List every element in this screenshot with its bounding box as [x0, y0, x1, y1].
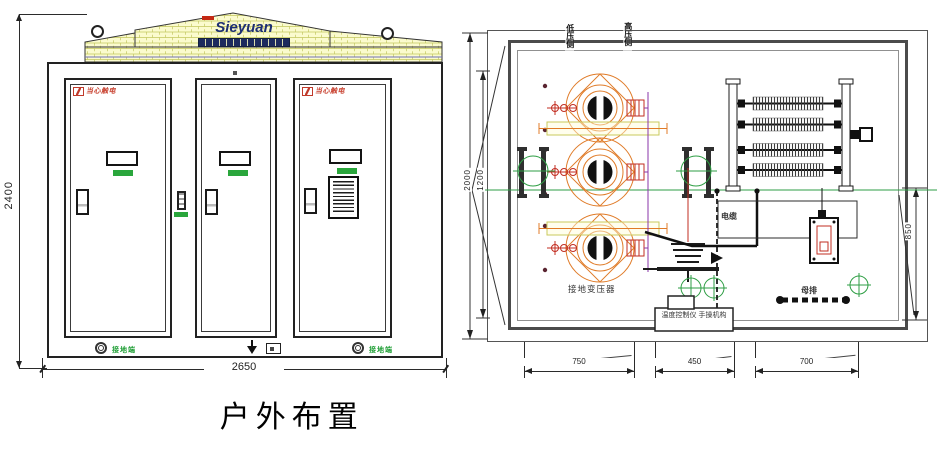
- base-socket: [266, 343, 281, 354]
- door-handle: [304, 188, 317, 214]
- plan-equipment-linework: [455, 20, 941, 356]
- door-handle: [76, 189, 89, 215]
- dim-arrow-icon: [756, 368, 763, 374]
- dim-arrow-icon: [16, 14, 22, 21]
- bottom-dim-line-2: [655, 371, 734, 372]
- cabinet-door-right: 当心触电: [293, 78, 392, 338]
- width-dim-label: 2650: [204, 362, 284, 373]
- bottom-dim-tick: [734, 342, 735, 378]
- dim-arrow-icon: [656, 368, 663, 374]
- meter-display: [219, 151, 251, 166]
- green-indicator: [337, 168, 357, 174]
- bottom-dim-tick: [634, 342, 635, 378]
- top-side-label-right: 高压侧: [623, 22, 632, 70]
- meter-display: [106, 151, 138, 166]
- bottom-dim-label-3: 700: [755, 358, 858, 366]
- electric-hazard-icon: [73, 87, 84, 96]
- front-elevation-view: 2400 Sieyuan 当心触电: [0, 0, 460, 390]
- dim-arrow-icon: [727, 368, 734, 374]
- panel-lock: [177, 191, 186, 210]
- transformer-label: 接地变压器: [568, 285, 616, 294]
- down-arrow-icon: [247, 346, 257, 354]
- ground-terminal-label: 接地端: [112, 345, 136, 355]
- electric-hazard-icon: [302, 87, 313, 96]
- logo-accent-mark: [202, 16, 214, 20]
- cable-label: 电缆: [721, 213, 737, 221]
- bottom-dim-line-3: [755, 371, 858, 372]
- drawing-title: 户外布置: [0, 392, 583, 436]
- vent-dot: [233, 71, 237, 75]
- plan-total-height-label: 2000: [464, 168, 472, 192]
- ground-terminal-icon: [352, 342, 364, 354]
- dim-arrow-icon: [525, 368, 532, 374]
- logo-text: Sieyuan: [215, 19, 273, 36]
- warning-label: 当心触电: [73, 86, 116, 96]
- lifting-lug-icon: [91, 25, 104, 38]
- bottom-dim-label-1: 750: [524, 358, 634, 366]
- meter-display: [329, 149, 362, 164]
- bottom-dim-line-1: [524, 371, 634, 372]
- door-handle: [205, 189, 218, 215]
- green-indicator: [228, 170, 248, 176]
- height-dim-ext-top: [19, 14, 87, 15]
- schematic-nameplate: [328, 176, 359, 219]
- dim-arrow-icon: [851, 368, 858, 374]
- plan-view: 低压侧 高压侧 2000 1200 850 接地变压器 电缆 母排 温度控制仪 …: [450, 18, 941, 390]
- height-dim-label: 2400: [4, 180, 15, 210]
- top-side-label-left: 低压侧: [565, 24, 574, 70]
- dim-arrow-icon: [16, 361, 22, 368]
- warning-label: 当心触电: [302, 86, 345, 96]
- cabinet-door-left: 当心触电: [64, 78, 172, 338]
- plan-inner-height-label: 1200: [477, 168, 485, 192]
- lifting-lug-icon: [381, 27, 394, 40]
- height-dim-line: [19, 14, 20, 368]
- brand-logo: Sieyuan: [196, 20, 292, 35]
- ground-bus-label: 母排: [801, 287, 817, 295]
- bottom-dim-tick: [858, 342, 859, 378]
- cabinet-door-middle: [195, 78, 277, 338]
- bottom-dim-label-2: 450: [655, 358, 734, 366]
- green-indicator: [174, 212, 188, 217]
- dim-arrow-icon: [627, 368, 634, 374]
- control-box-label: 温度控制仪 手操机构: [656, 312, 732, 319]
- ground-terminal-label: 接地端: [369, 345, 393, 355]
- warning-text: 当心触电: [315, 86, 345, 96]
- logo-subtitle-strip: [198, 38, 290, 47]
- plan-right-height-label: 850: [905, 222, 913, 240]
- warning-text: 当心触电: [86, 86, 116, 96]
- green-indicator: [113, 170, 133, 176]
- ground-terminal-icon: [95, 342, 107, 354]
